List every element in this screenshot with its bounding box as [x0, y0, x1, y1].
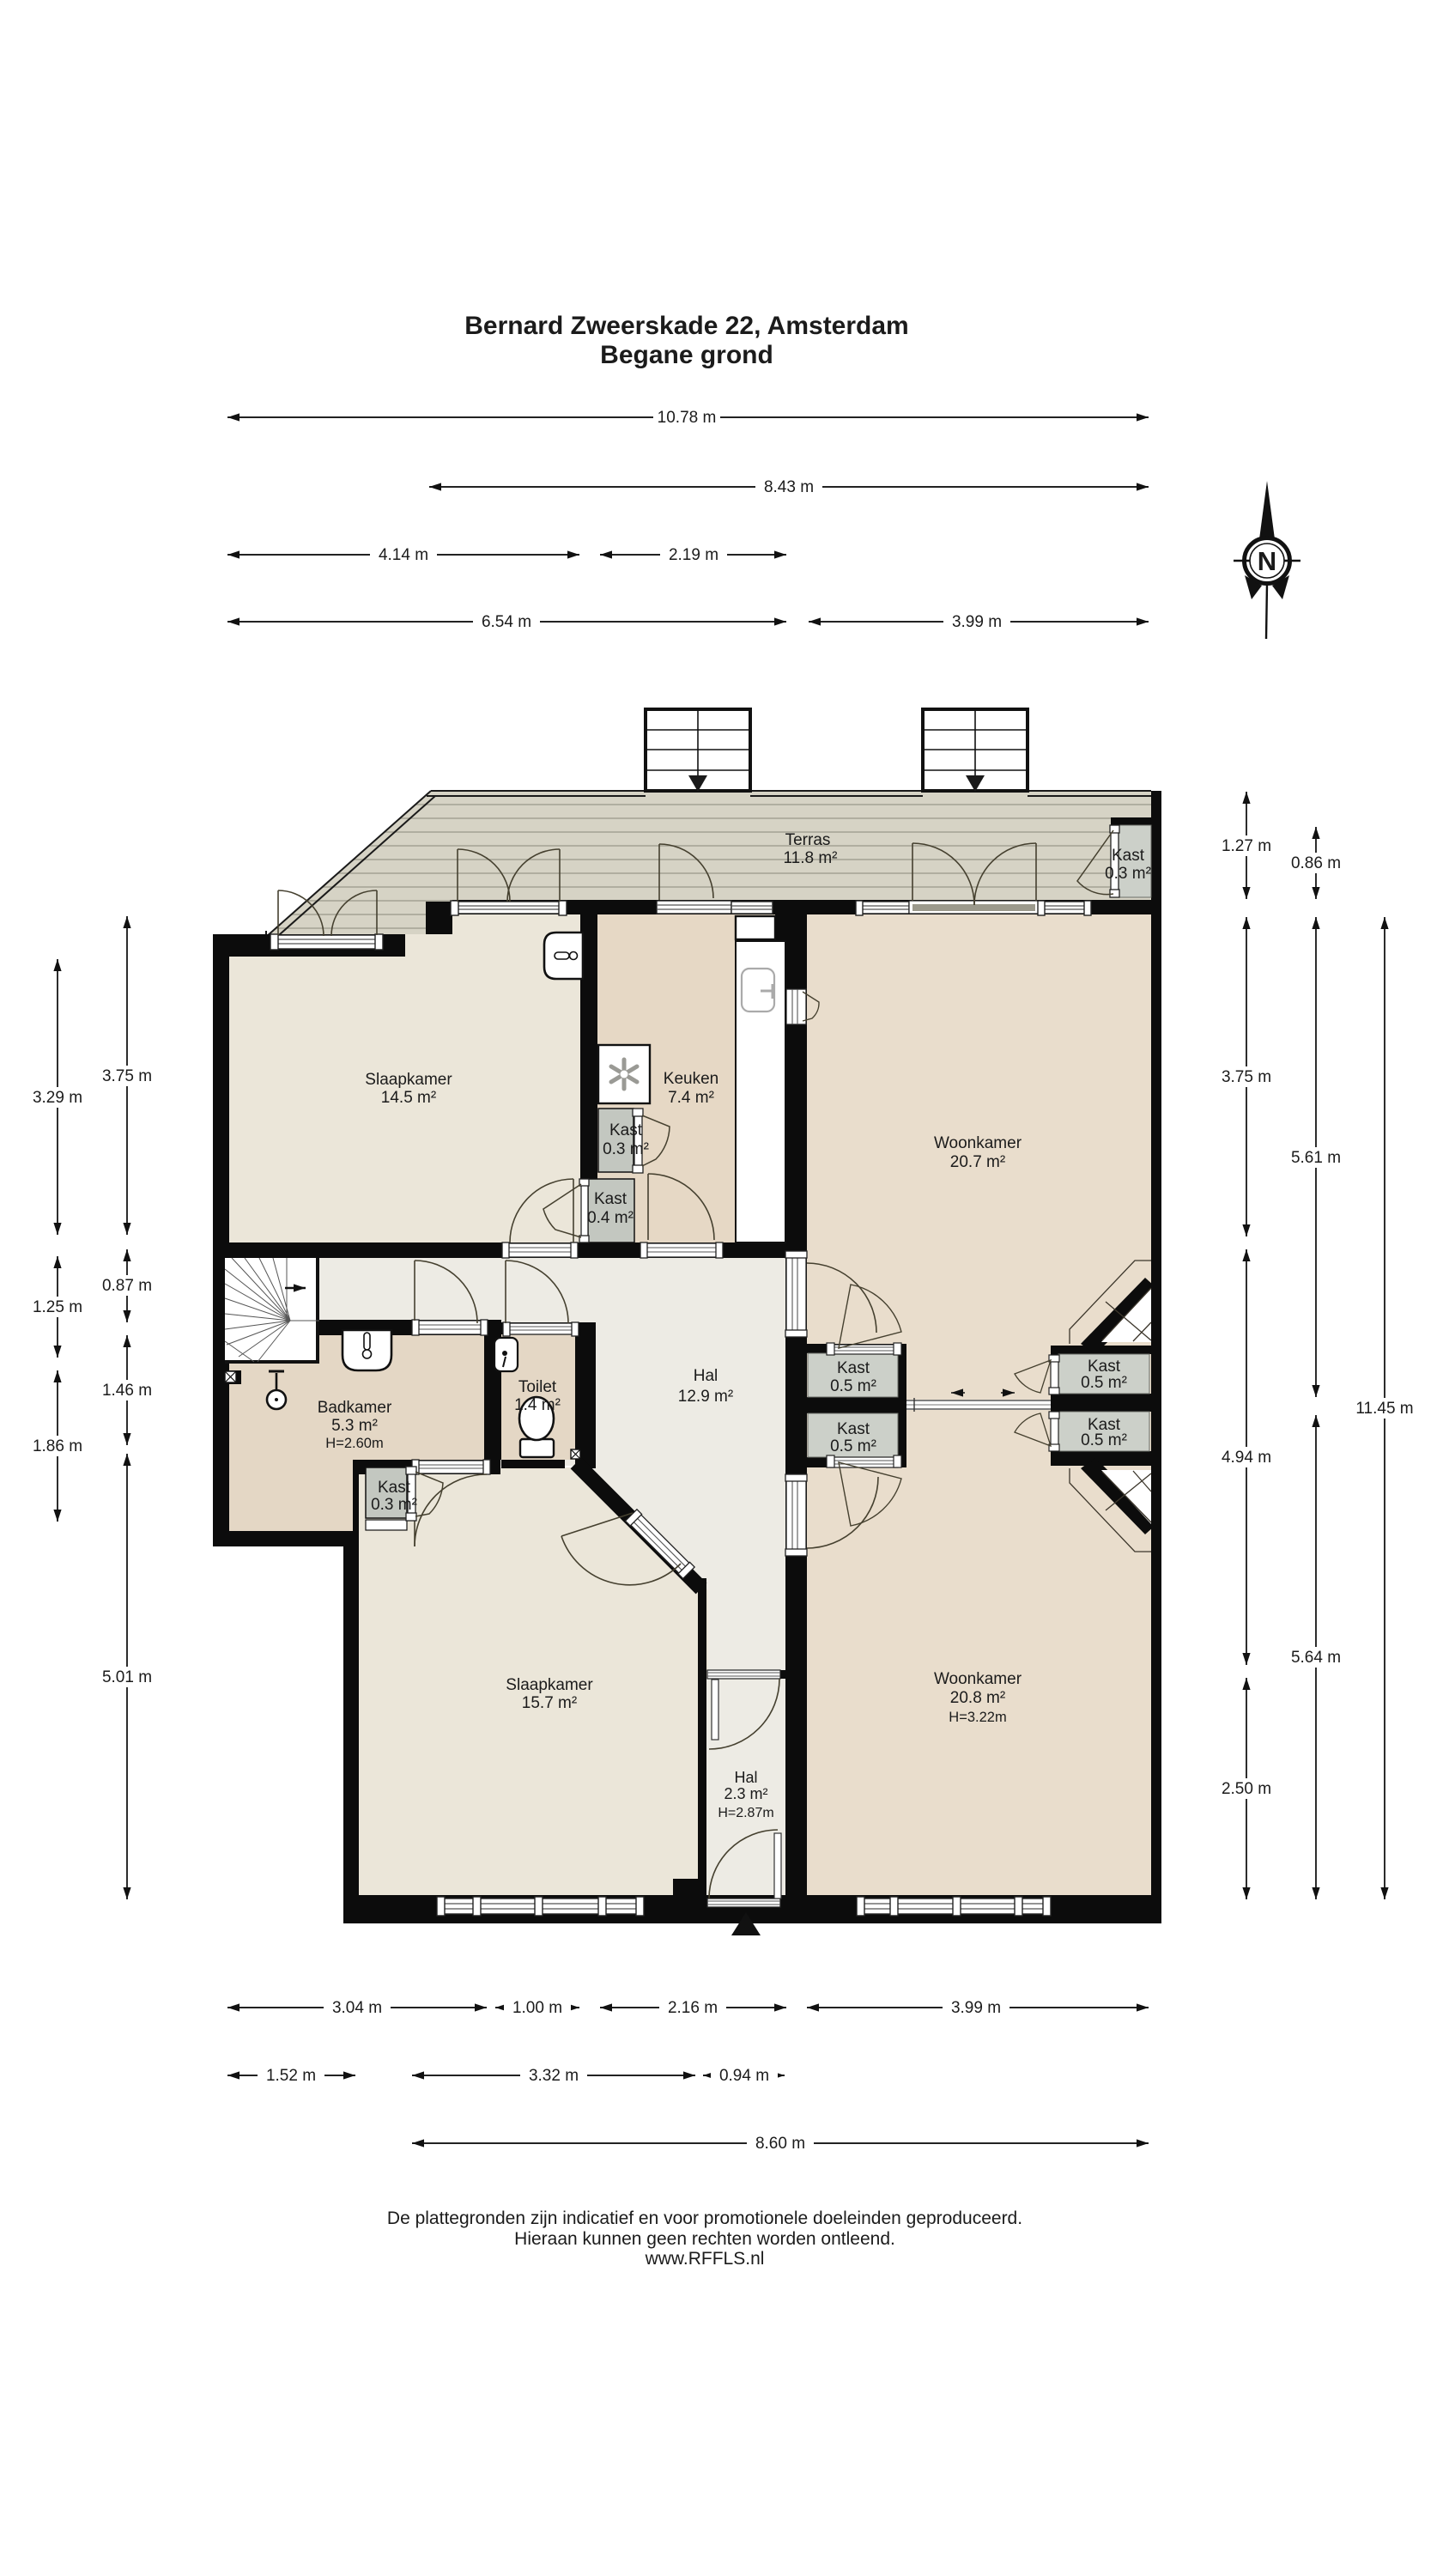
- svg-text:Bernard Zweerskade 22, Amsterd: Bernard Zweerskade 22, Amsterdam: [464, 312, 908, 340]
- svg-text:1.4 m²: 1.4 m²: [514, 1396, 561, 1414]
- svg-text:Hieraan kunnen geen rechten wo: Hieraan kunnen geen rechten worden ontle…: [514, 2229, 895, 2249]
- svg-text:20.7 m²: 20.7 m²: [950, 1153, 1005, 1171]
- svg-text:2.50 m: 2.50 m: [1222, 1780, 1271, 1798]
- svg-text:7.4 m²: 7.4 m²: [668, 1089, 714, 1107]
- svg-text:Begane grond: Begane grond: [600, 341, 773, 369]
- svg-text:6.54 m: 6.54 m: [482, 613, 531, 631]
- svg-text:Kast: Kast: [1112, 847, 1145, 865]
- svg-text:3.75 m: 3.75 m: [102, 1067, 152, 1085]
- svg-text:0.5 m²: 0.5 m²: [1081, 1374, 1127, 1392]
- svg-text:Kast: Kast: [594, 1190, 627, 1208]
- svg-text:Kast: Kast: [837, 1420, 870, 1438]
- svg-text:14.5 m²: 14.5 m²: [381, 1089, 436, 1107]
- svg-text:0.86 m: 0.86 m: [1291, 854, 1341, 872]
- svg-text:3.99 m: 3.99 m: [952, 613, 1002, 631]
- svg-text:0.3 m²: 0.3 m²: [603, 1140, 649, 1158]
- svg-text:1.46 m: 1.46 m: [102, 1382, 152, 1400]
- svg-text:Badkamer: Badkamer: [318, 1399, 392, 1417]
- svg-text:3.32 m: 3.32 m: [529, 2067, 579, 2085]
- svg-text:Kast: Kast: [837, 1359, 870, 1377]
- svg-text:10.78 m: 10.78 m: [658, 409, 717, 427]
- svg-text:H=3.22m: H=3.22m: [949, 1710, 1006, 1725]
- svg-text:3.75 m: 3.75 m: [1222, 1068, 1271, 1086]
- svg-text:15.7 m²: 15.7 m²: [522, 1694, 577, 1712]
- svg-text:Kast: Kast: [378, 1479, 411, 1497]
- svg-text:1.25 m: 1.25 m: [33, 1298, 82, 1316]
- svg-text:3.04 m: 3.04 m: [332, 1999, 382, 2017]
- svg-text:5.01 m: 5.01 m: [102, 1668, 152, 1686]
- svg-text:4.94 m: 4.94 m: [1222, 1449, 1271, 1467]
- svg-text:H=2.60m: H=2.60m: [325, 1436, 383, 1451]
- svg-text:1.00 m: 1.00 m: [512, 1999, 562, 2017]
- svg-text:Woonkamer: Woonkamer: [934, 1670, 1022, 1688]
- svg-text:3.29 m: 3.29 m: [33, 1089, 82, 1107]
- svg-text:3.99 m: 3.99 m: [951, 1999, 1001, 2017]
- svg-text:Hal: Hal: [734, 1769, 757, 1786]
- svg-text:5.64 m: 5.64 m: [1291, 1649, 1341, 1667]
- svg-text:8.43 m: 8.43 m: [764, 478, 814, 496]
- svg-text:4.14 m: 4.14 m: [379, 546, 428, 564]
- svg-text:2.19 m: 2.19 m: [669, 546, 718, 564]
- svg-text:Kast: Kast: [609, 1121, 643, 1139]
- svg-text:0.94 m: 0.94 m: [719, 2067, 769, 2085]
- svg-text:N: N: [1258, 546, 1276, 576]
- svg-text:Slaapkamer: Slaapkamer: [506, 1676, 593, 1694]
- svg-text:Hal: Hal: [694, 1367, 718, 1385]
- svg-text:www.RFFLS.nl: www.RFFLS.nl: [645, 2249, 765, 2269]
- svg-text:0.5 m²: 0.5 m²: [1081, 1431, 1127, 1449]
- svg-text:2.3 m²: 2.3 m²: [724, 1785, 767, 1802]
- svg-text:0.3 m²: 0.3 m²: [1105, 865, 1151, 883]
- svg-text:5.61 m: 5.61 m: [1291, 1149, 1341, 1167]
- svg-text:20.8 m²: 20.8 m²: [950, 1689, 1005, 1707]
- svg-text:Terras: Terras: [785, 831, 831, 849]
- svg-text:Toilet: Toilet: [518, 1378, 557, 1396]
- svg-text:11.45 m: 11.45 m: [1355, 1400, 1413, 1418]
- svg-text:12.9 m²: 12.9 m²: [678, 1388, 733, 1406]
- svg-text:0.87 m: 0.87 m: [102, 1277, 152, 1295]
- svg-text:Woonkamer: Woonkamer: [934, 1134, 1022, 1152]
- svg-text:De plattegronden zijn indicati: De plattegronden zijn indicatief en voor…: [387, 2208, 1022, 2228]
- svg-text:2.16 m: 2.16 m: [668, 1999, 718, 2017]
- svg-text:0.3 m²: 0.3 m²: [371, 1496, 417, 1514]
- svg-text:1.52 m: 1.52 m: [266, 2067, 316, 2085]
- svg-text:11.8 m²: 11.8 m²: [783, 849, 837, 867]
- svg-text:Slaapkamer: Slaapkamer: [365, 1071, 452, 1089]
- svg-text:Keuken: Keuken: [664, 1070, 718, 1088]
- svg-text:1.86 m: 1.86 m: [33, 1437, 82, 1455]
- svg-text:1.27 m: 1.27 m: [1222, 837, 1271, 855]
- svg-text:0.4 m²: 0.4 m²: [587, 1209, 634, 1227]
- svg-text:0.5 m²: 0.5 m²: [830, 1437, 876, 1455]
- svg-text:5.3 m²: 5.3 m²: [331, 1417, 378, 1435]
- svg-text:Kast: Kast: [1088, 1358, 1121, 1376]
- svg-text:8.60 m: 8.60 m: [755, 2135, 805, 2153]
- svg-text:H=2.87m: H=2.87m: [718, 1806, 773, 1820]
- svg-text:0.5 m²: 0.5 m²: [830, 1377, 876, 1395]
